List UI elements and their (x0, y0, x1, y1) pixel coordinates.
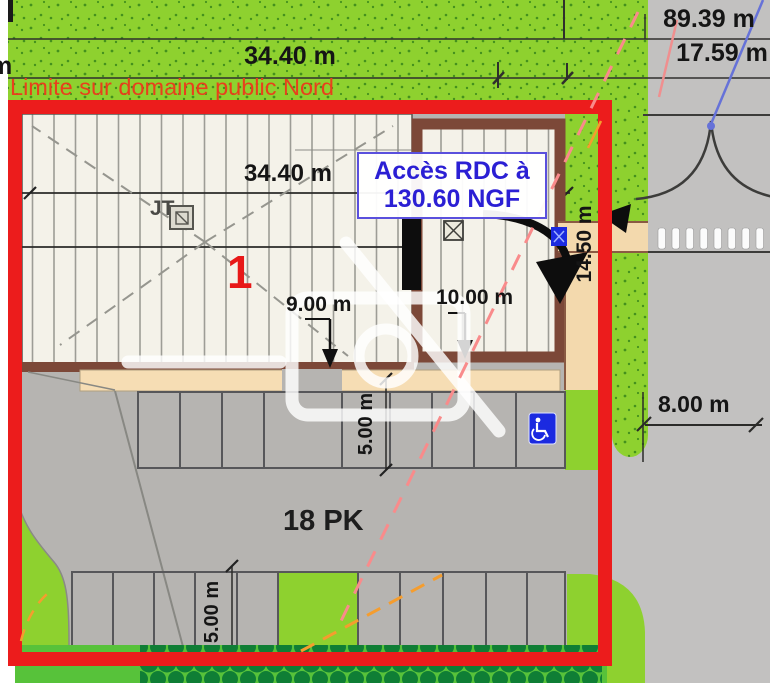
dimension-road-width: 17.59 m (672, 39, 770, 68)
access-note-line1: Accès RDC à (359, 157, 545, 185)
access-note: Accès RDC à 130.60 NGF (357, 152, 547, 219)
roof-marker-label: JT (150, 197, 175, 221)
dimension-9m: 9.00 m (286, 293, 351, 317)
dimension-10m: 10.00 m (436, 286, 513, 310)
dimension-5m-middle: 5.00 m (355, 380, 377, 468)
limit-note: Limite sur domaine public Nord (10, 74, 334, 101)
dimension-1450: 14.50 m (573, 187, 597, 301)
dimension-top-width: 34.40 m (225, 42, 355, 71)
accessible-parking-icon (529, 413, 556, 444)
dimension-building-width: 34.40 m (228, 160, 348, 188)
entrance-door (402, 218, 421, 290)
dimension-5m-bottom: 5.00 m (201, 568, 223, 656)
roof-window-icon (444, 221, 463, 240)
lot-number: 1 (227, 249, 253, 295)
access-note-line2: 130.60 NGF (359, 185, 545, 213)
parking-count-label: 18 PK (283, 505, 364, 538)
site-plan: m 34.40 m 89.39 m 17.59 m Limite sur dom… (0, 0, 770, 683)
dimension-8m-label: 8.00 m (658, 391, 730, 418)
site-plan-drawing (0, 0, 770, 683)
survey-point (707, 122, 715, 130)
dimension-total-depth: 89.39 m (650, 5, 768, 34)
